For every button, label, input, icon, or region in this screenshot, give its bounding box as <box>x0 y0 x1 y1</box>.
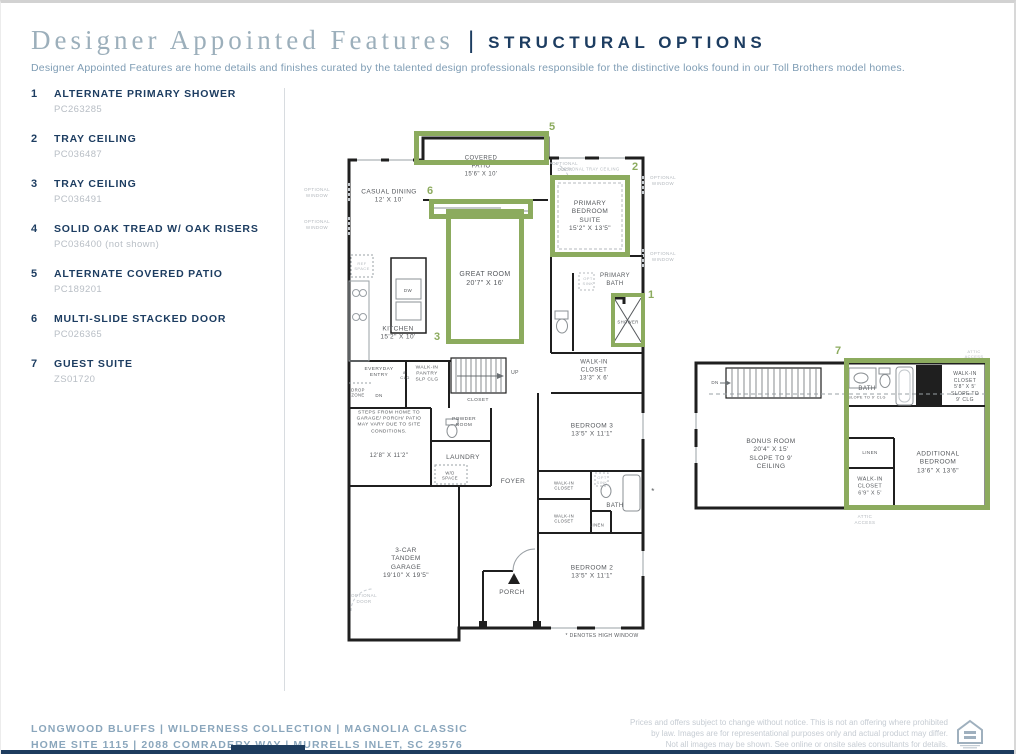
label-drop-zone: DROP ZONE <box>351 388 365 399</box>
label-primary-bath: PRIMARY BATH <box>600 273 630 289</box>
feature-item: 4 SOLID OAK TREAD W/ OAK RISERS PC036400… <box>31 223 276 250</box>
feature-code: ZS01720 <box>54 374 276 385</box>
feature-title: ALTERNATE COVERED PATIO <box>54 268 276 281</box>
marker-5: 5 <box>549 121 555 133</box>
marker-3: 3 <box>434 331 440 343</box>
feature-title: SOLID OAK TREAD W/ OAK RISERS <box>54 223 276 236</box>
header-description: Designer Appointed Features are home det… <box>31 62 905 74</box>
feature-number: 7 <box>31 358 37 370</box>
feature-box-alt-shower <box>611 293 645 347</box>
label-steps-note: STEPS FROM HOME TO GARAGE/ PORCH/ PATIO … <box>357 411 422 436</box>
feature-code: PC026365 <box>54 329 276 340</box>
feature-code: PC036487 <box>54 149 276 160</box>
label-garage: 3-CAR TANDEM GARAGE 19'10" X 19'5" <box>383 547 429 581</box>
equal-housing-logo <box>956 719 984 749</box>
feature-number: 6 <box>31 313 37 325</box>
feature-box-guest-suite <box>844 358 990 510</box>
label-kitchen: KITCHEN 15'2" X 10' <box>380 326 415 343</box>
marker-2: 2 <box>632 161 638 173</box>
label-closet: CLOSET <box>467 398 489 404</box>
label-optional-window: OPTIONAL WINDOW <box>650 251 676 263</box>
label-optional-tray-ceiling: OPTIONAL TRAY CEILING <box>560 166 619 171</box>
label-walk-in-closet: WALK-IN CLOSET <box>554 514 574 525</box>
feature-box-alt-covered-patio <box>414 131 549 165</box>
label-dw: DW <box>404 288 412 294</box>
feature-box-tray-ceiling-primary <box>550 175 630 257</box>
label-up: UP <box>511 370 519 377</box>
label-bonus-room: BONUS ROOM 20'4" X 15' SLOPE TO 9' CEILI… <box>746 438 795 472</box>
second-floor-plan: 7 DN ATTIC ACCESS BONUS ROOM 20'4" X 15'… <box>689 343 1009 538</box>
label-foyer: FOYER <box>501 478 525 486</box>
label-bath: BATH <box>606 503 623 511</box>
label-opt-sink: OPT SINK <box>583 276 594 286</box>
first-floor-plan: 5 6 2 1 3 COVERED PATIO 15'6" X 10' OPTI… <box>301 121 701 651</box>
label-opt-sink: OPT SINK <box>597 475 608 485</box>
footer-disclaimer: Prices and offers subject to change with… <box>630 717 948 750</box>
feature-code: PC189201 <box>54 284 276 295</box>
feature-title: ALTERNATE PRIMARY SHOWER <box>54 88 276 101</box>
feature-number: 1 <box>31 88 37 100</box>
footer-line1: LONGWOOD BLUFFS | WILDERNESS COLLECTION … <box>31 723 468 735</box>
label-casual-dining: CASUAL DINING 12' X 10' <box>361 189 417 206</box>
label-8-clg: 8' CLG <box>400 370 409 380</box>
label-optional-window: OPTIONAL WINDOW <box>304 219 330 231</box>
feature-item: 1 ALTERNATE PRIMARY SHOWER PC263285 <box>31 88 276 115</box>
page-title: Designer Appointed Features <box>31 25 454 56</box>
title-separator: | <box>468 29 474 53</box>
label-ref-space: REF SPACE <box>354 261 369 271</box>
label-porch: PORCH <box>499 589 524 597</box>
brochure-page: Designer Appointed Features | STRUCTURAL… <box>0 0 1016 754</box>
label-everyday-entry: EVERYDAY ENTRY <box>365 367 394 379</box>
feature-item: 6 MULTI-SLIDE STACKED DOOR PC026365 <box>31 313 276 340</box>
bottom-bar <box>1 750 1014 754</box>
label-high-window-asterisk: * <box>651 487 655 497</box>
feature-title: MULTI-SLIDE STACKED DOOR <box>54 313 276 326</box>
header: Designer Appointed Features | STRUCTURAL… <box>31 25 905 74</box>
label-powder-room: POWDER ROOM <box>452 417 476 429</box>
label-dn: DN <box>375 393 382 399</box>
label-optional-door: OPTIONAL DOOR <box>351 593 377 605</box>
feature-number: 3 <box>31 178 37 190</box>
label-bedroom3: BEDROOM 3 13'5" X 11'1" <box>571 423 614 440</box>
feature-title: GUEST SUITE <box>54 358 276 371</box>
label-wd-space: W/D SPACE <box>442 471 458 482</box>
feature-title: TRAY CEILING <box>54 178 276 191</box>
label-optional-window: OPTIONAL WINDOW <box>304 187 330 199</box>
label-high-window-note: * DENOTES HIGH WINDOW <box>565 633 638 640</box>
label-walk-in-pantry: WALK-IN PANTRY SLP CLG <box>416 366 439 385</box>
feature-code: PC036491 <box>54 194 276 205</box>
feature-code: PC036400 (not shown) <box>54 239 276 250</box>
label-walk-in-closet-13: WALK-IN CLOSET 13'3" X 6' <box>579 359 608 382</box>
marker-6: 6 <box>427 185 433 197</box>
section-title: STRUCTURAL OPTIONS <box>488 29 766 53</box>
label-walk-in-closet: WALK-IN CLOSET <box>554 481 574 492</box>
label-linen: LINEN <box>590 522 604 527</box>
label-laundry: LAUNDRY <box>446 454 480 462</box>
feature-title: TRAY CEILING <box>54 133 276 146</box>
feature-number: 2 <box>31 133 37 145</box>
feature-number: 4 <box>31 223 37 235</box>
feature-item: 5 ALTERNATE COVERED PATIO PC189201 <box>31 268 276 295</box>
label-optional-window: OPTIONAL WINDOW <box>650 175 676 187</box>
bottom-bar-notch <box>231 745 305 754</box>
feature-item: 2 TRAY CEILING PC036487 <box>31 133 276 160</box>
label-dn: DN <box>711 380 718 386</box>
feature-number: 5 <box>31 268 37 280</box>
feature-item: 7 GUEST SUITE ZS01720 <box>31 358 276 385</box>
header-title-row: Designer Appointed Features | STRUCTURAL… <box>31 25 905 56</box>
label-bedroom2: BEDROOM 2 13'5" X 11'1" <box>571 565 614 582</box>
label-mud-dims: 12'8" X 11'2" <box>370 453 409 461</box>
feature-list: 1 ALTERNATE PRIMARY SHOWER PC263285 2 TR… <box>31 88 276 403</box>
feature-code: PC263285 <box>54 104 276 115</box>
label-attic-access: ATTIC ACCESS <box>855 514 876 526</box>
marker-1: 1 <box>648 289 654 301</box>
feature-box-tray-ceiling-great-room <box>446 209 524 344</box>
sidebar-divider <box>284 88 285 691</box>
feature-item: 3 TRAY CEILING PC036491 <box>31 178 276 205</box>
marker-7: 7 <box>835 345 841 357</box>
